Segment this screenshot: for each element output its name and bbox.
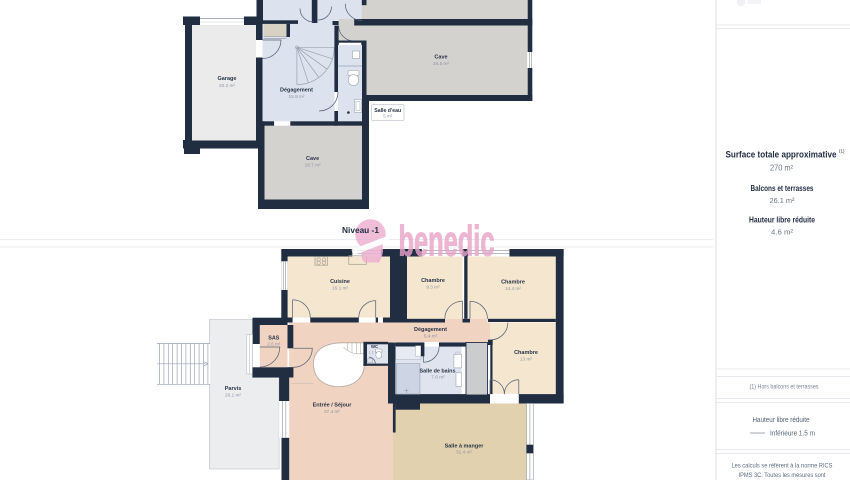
svg-text:5.4 m²: 5.4 m² [424, 333, 438, 338]
svg-text:13 m²: 13 m² [520, 357, 532, 362]
svg-text:benedic: benedic [399, 218, 495, 266]
svg-text:Parvis: Parvis [225, 386, 242, 392]
svg-text:2.6 m²: 2.6 m² [267, 342, 280, 347]
svg-text:26.1 m²: 26.1 m² [225, 393, 241, 398]
svg-text:Chambre: Chambre [501, 280, 525, 286]
svg-text:18.7 m²: 18.7 m² [305, 163, 321, 168]
svg-text:4.6 m²: 4.6 m² [771, 228, 793, 237]
svg-text:Salle de bains: Salle de bains [420, 369, 456, 375]
svg-text:9.3 m²: 9.3 m² [426, 285, 440, 290]
svg-text:Balcons et terrasses: Balcons et terrasses [751, 184, 815, 193]
svg-text:Entrée / Séjour: Entrée / Séjour [313, 403, 353, 409]
svg-text:Les calculs se réfèrent à la n: Les calculs se réfèrent à la norme RICS [732, 463, 833, 470]
svg-text:Inférieure 1.5 m: Inférieure 1.5 m [770, 430, 815, 437]
svg-text:14.4 m²: 14.4 m² [505, 286, 521, 291]
svg-text:7.6 m²: 7.6 m² [431, 375, 445, 381]
svg-text:270 m²: 270 m² [770, 164, 793, 173]
svg-text:WC: WC [371, 344, 378, 349]
svg-text:15.9 m²: 15.9 m² [289, 94, 305, 99]
svg-text:(1) Hors balcons et terrasses: (1) Hors balcons et terrasses [750, 384, 820, 391]
svg-text:20.2 m²: 20.2 m² [219, 83, 235, 88]
svg-text:(1): (1) [839, 149, 845, 154]
svg-text:Hauteur libre réduite: Hauteur libre réduite [749, 216, 816, 225]
svg-text:Cave: Cave [434, 55, 447, 61]
svg-text:5 m²: 5 m² [383, 114, 393, 119]
svg-text:26.1 m²: 26.1 m² [770, 196, 795, 205]
svg-text:Cuisine: Cuisine [330, 279, 350, 285]
svg-text:Chambre: Chambre [514, 350, 538, 356]
svg-text:Niveau -1: Niveau -1 [342, 225, 379, 235]
svg-text:Dégagement: Dégagement [280, 88, 313, 94]
svg-text:Surface totale approximative: Surface totale approximative [726, 150, 837, 160]
svg-text:16.1 m²: 16.1 m² [332, 286, 348, 291]
svg-text:37.4 m²: 37.4 m² [324, 409, 340, 414]
svg-text:26.5 m²: 26.5 m² [433, 61, 449, 66]
svg-text:Hauteur libre réduite: Hauteur libre réduite [753, 417, 810, 424]
svg-text:31.4 m²: 31.4 m² [456, 450, 472, 455]
svg-text:Garage: Garage [218, 76, 237, 82]
svg-text:Chambre: Chambre [421, 278, 445, 284]
svg-text:IPMS 3C. Toutes les mesures so: IPMS 3C. Toutes les mesures sont [739, 472, 826, 479]
svg-text:Dégagement: Dégagement [414, 327, 447, 333]
svg-text:Cave: Cave [306, 156, 319, 162]
